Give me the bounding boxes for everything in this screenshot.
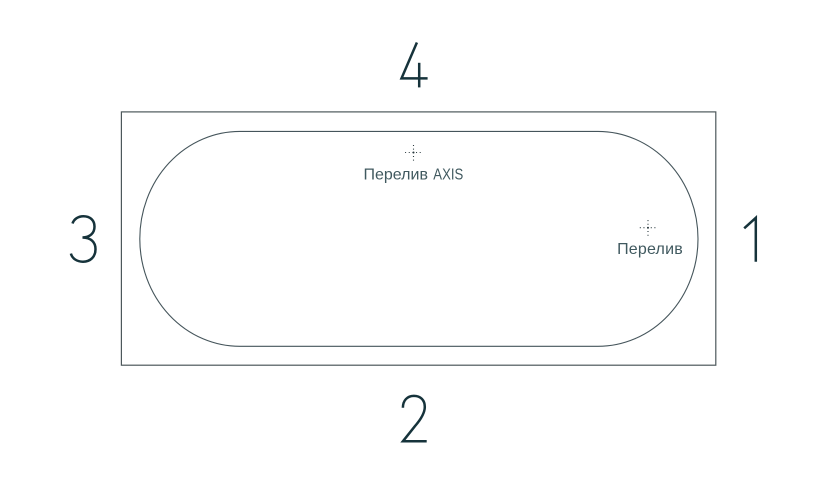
svg-text:Перелив: Перелив: [364, 167, 428, 184]
svg-text:Перелив: Перелив: [617, 241, 683, 258]
svg-text:AXIS: AXIS: [433, 167, 463, 184]
